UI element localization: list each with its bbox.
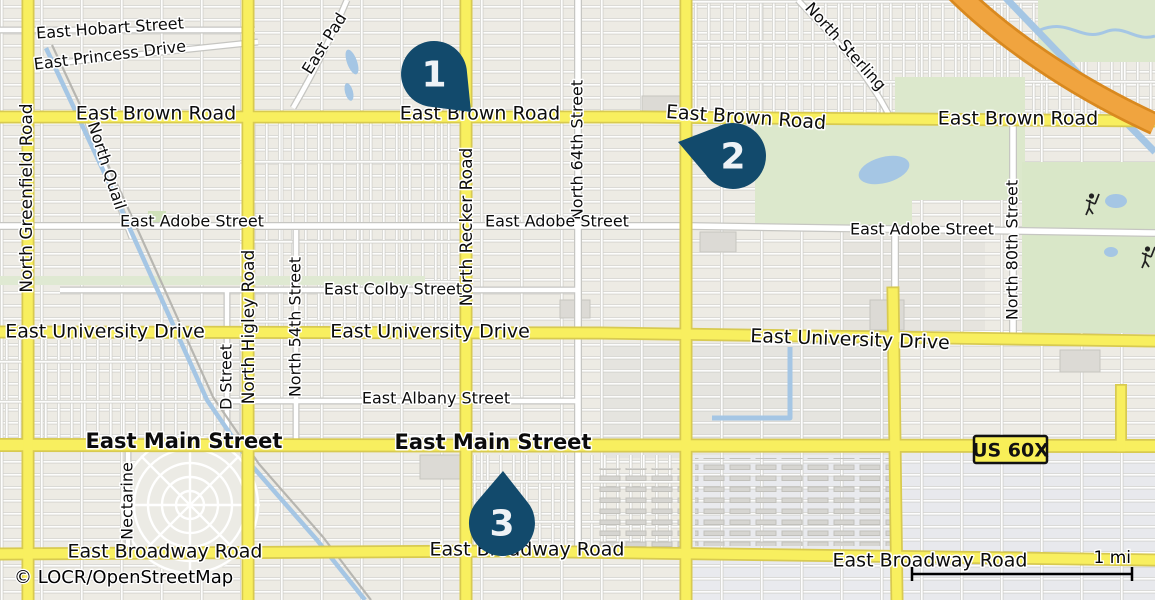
street-label: East Adobe Street bbox=[120, 212, 264, 231]
golf-course-area bbox=[1022, 162, 1155, 333]
street-label: East Adobe Street bbox=[850, 220, 994, 239]
street-label: East Colby Street bbox=[324, 280, 462, 299]
pin-number: 2 bbox=[720, 137, 745, 178]
street-label: North 64th Street bbox=[568, 80, 587, 220]
street-label: East University Drive bbox=[5, 321, 205, 343]
street-label: East University Drive bbox=[330, 321, 530, 343]
street-label: North Greenfield Road bbox=[17, 103, 37, 292]
street-label: East Brown Road bbox=[400, 103, 560, 125]
route-badge: US 60X bbox=[972, 436, 1049, 463]
map-viewport: US 60X East Hobart StreetEast Princess D… bbox=[0, 0, 1155, 600]
street-label: North 54th Street bbox=[286, 257, 305, 397]
street-label: East Broadway Road bbox=[68, 541, 263, 563]
street-label: East Albany Street bbox=[362, 389, 510, 408]
street-label: D Street bbox=[217, 344, 236, 410]
apartment-rows bbox=[597, 458, 900, 550]
street-label: North Higley Road bbox=[239, 250, 259, 405]
scale-label: 1 mi bbox=[1093, 548, 1131, 568]
street-label: North 80th Street bbox=[1003, 180, 1022, 320]
map-canvas[interactable]: US 60X East Hobart StreetEast Princess D… bbox=[0, 0, 1155, 600]
map-attribution: © LOCR/OpenStreetMap bbox=[14, 567, 233, 588]
street-label: East Main Street bbox=[395, 430, 592, 454]
pin-number: 3 bbox=[489, 504, 514, 545]
street-label: Nectarine bbox=[118, 462, 137, 540]
street-label: East Adobe Street bbox=[485, 212, 629, 231]
street-label: East Broadway Road bbox=[833, 550, 1028, 572]
street-label: East Brown Road bbox=[938, 108, 1098, 130]
street-label: East Main Street bbox=[86, 429, 283, 453]
route-badge-label: US 60X bbox=[972, 440, 1049, 462]
street-label: East Brown Road bbox=[76, 103, 236, 125]
pin-number: 1 bbox=[421, 55, 446, 96]
